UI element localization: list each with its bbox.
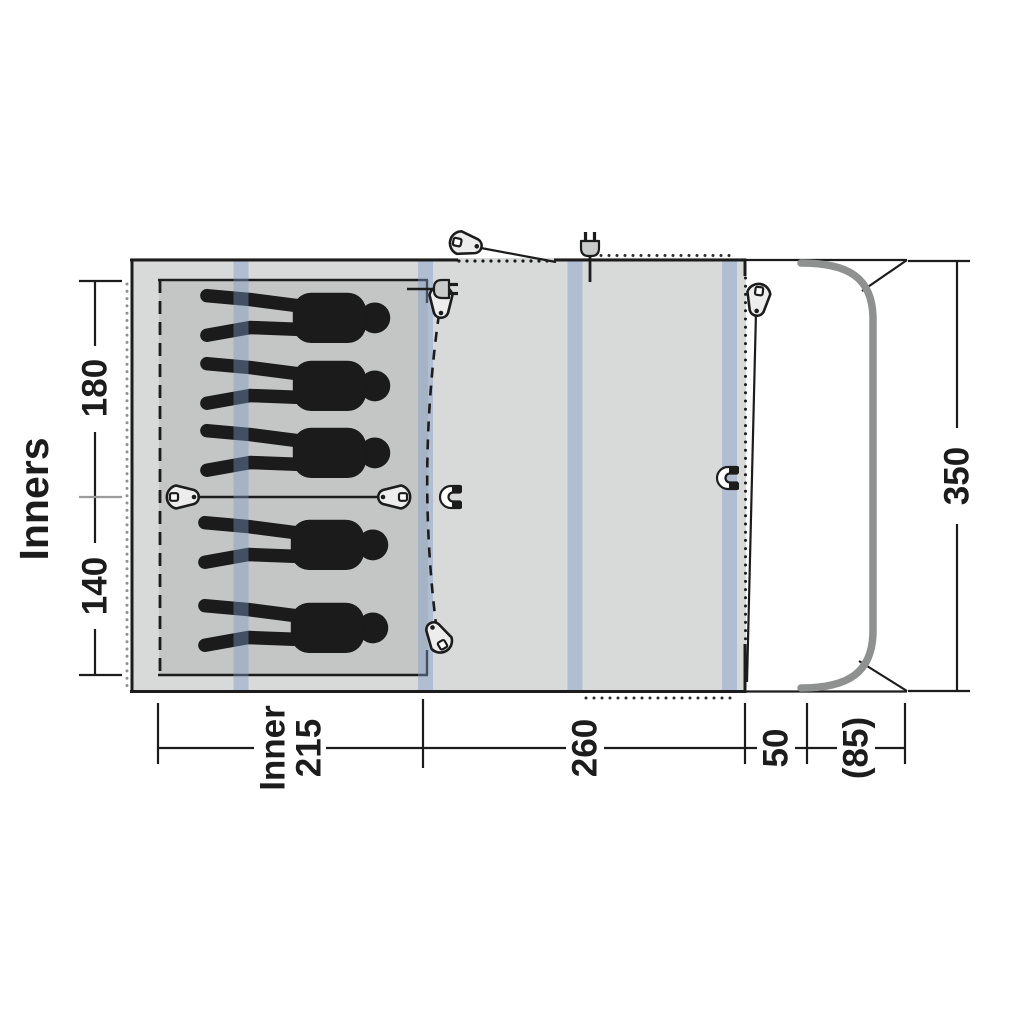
mains-plug-icon: [581, 232, 599, 256]
inners-title: Inners: [11, 437, 57, 560]
divider-toggle-icon: [167, 486, 199, 509]
pole-band: [568, 260, 583, 691]
tent-floorplan-diagram: Inners 180 140 Inner 215 260 50 (85) 350: [0, 0, 1024, 1024]
main-tent-body: [127, 229, 771, 698]
dim-label-140: 140: [76, 557, 115, 615]
dim-label-350: 350: [938, 447, 977, 505]
side-door-panel-line: [747, 312, 756, 682]
divider-toggle-icon: [378, 486, 410, 509]
dim-label-85: (85): [837, 717, 876, 779]
pole-band: [234, 260, 249, 691]
dim-label-inner-word: Inner: [254, 705, 293, 791]
dim-label-215: 215: [290, 719, 329, 777]
front-canopy: [746, 260, 907, 692]
canopy-pole-curve: [801, 263, 873, 688]
zipper-pull-icon: [745, 283, 772, 318]
dim-label-180: 180: [76, 359, 115, 417]
dim-label-50: 50: [757, 729, 796, 768]
guyline-peg-icon: [448, 229, 484, 258]
dim-label-260: 260: [566, 719, 605, 777]
floorplan-canvas: Inners 180 140 Inner 215 260 50 (85) 350: [0, 0, 1024, 1024]
